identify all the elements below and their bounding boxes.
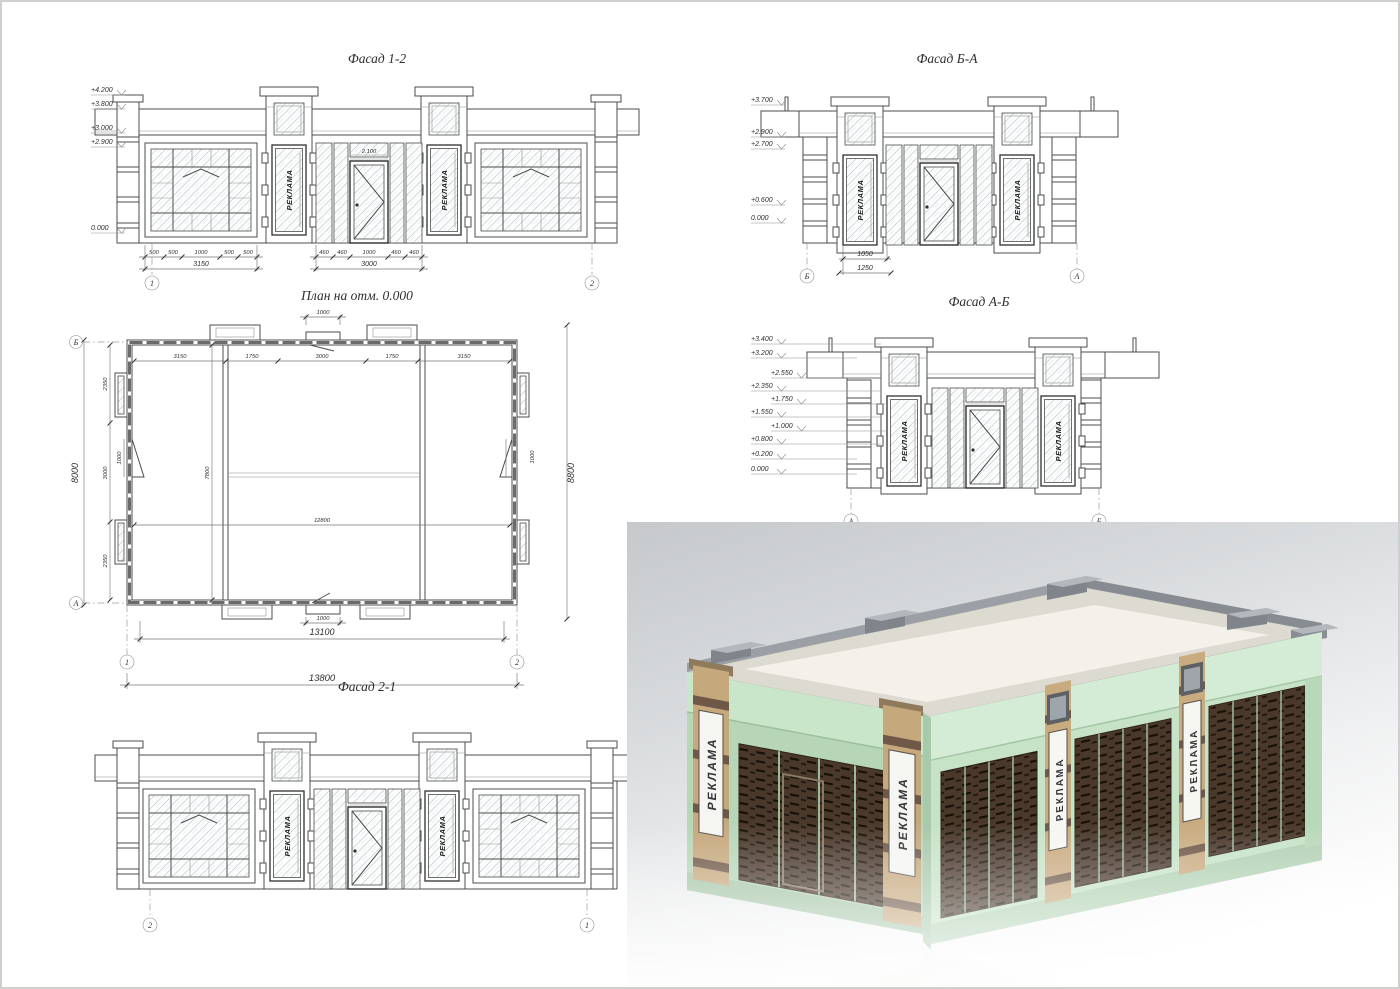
axis-label: А [73, 599, 79, 608]
mark: +3.400 [751, 336, 773, 343]
facade-2-1-title: Фасад 2-1 [338, 679, 396, 694]
dim: 1750 [386, 354, 400, 360]
dim: 1000 [530, 450, 536, 464]
mark: +2.900 [91, 139, 113, 146]
dim: 460 [337, 250, 347, 256]
mark: +0.200 [751, 451, 773, 458]
dim: 500 [243, 250, 253, 256]
dim: 1250 [857, 265, 873, 272]
reflection-fade [627, 822, 1400, 989]
dim: 3150 [458, 354, 472, 360]
mark: +0.600 [751, 197, 773, 204]
dim: 3000 [316, 354, 330, 360]
render-sign-text: РЕКЛАМА [705, 736, 719, 812]
dimension-row-center: 460 460 1000 460 460 3000 [310, 245, 428, 272]
mark: +2.900 [751, 129, 773, 136]
axis-label: Б [73, 338, 79, 347]
dim: 460 [409, 250, 419, 256]
dim: 500 [168, 250, 178, 256]
dim: 7800 [205, 466, 211, 480]
facade-1-2-drawing: Фасад 1-2 2.100 +4.200 +3.800 +3.000 +2.… [87, 47, 647, 292]
mark: +1.550 [751, 409, 773, 416]
dim-total: 3000 [361, 261, 377, 268]
mark: +3.000 [91, 125, 113, 132]
dim-total: 3150 [193, 261, 209, 268]
mark: +1.750 [771, 396, 793, 403]
facade-BA-title: Фасад Б-А [917, 51, 979, 66]
facade-BA-drawing: Фасад Б-А +3.700 +2.900 +2.700 +0.600 0.… [747, 47, 1132, 287]
mark: +3.200 [751, 350, 773, 357]
facade-AB-drawing: Фасад А-Б +3.400 +3.200 +2.550 +2.350 +1… [747, 292, 1172, 532]
dim: 8800 [566, 463, 576, 483]
dim: 1000 [117, 451, 123, 465]
facade-AB-title: Фасад А-Б [949, 294, 1010, 309]
dim: 2350 [103, 377, 109, 392]
axis-label: Б [804, 272, 810, 281]
dim: 1000 [363, 250, 377, 256]
facade-2-1-drawing: Фасад 2-1 2 1 [87, 677, 642, 942]
plan-protrusions [115, 325, 529, 619]
dim: 2350 [103, 554, 109, 569]
dim: 1750 [246, 354, 260, 360]
mark: +3.800 [91, 101, 113, 108]
plan-dimensions: 1000 3150 1750 3000 1750 3150 8000 2350 … [70, 310, 576, 689]
dim: 1000 [317, 310, 331, 316]
axis-label: 2 [148, 921, 152, 930]
mark: 0.000 [91, 225, 109, 232]
axis-label: 1 [585, 921, 589, 930]
dimension-row-left: 500 500 1000 500 500 3150 [139, 245, 263, 272]
axis-bubbles: 2 1 [143, 889, 594, 932]
drawing-sheet: РЕКЛАМА Фа [0, 0, 1400, 989]
mark: +3.700 [751, 97, 773, 104]
render-background: РЕКЛАМА РЕКЛАМА [627, 522, 1400, 989]
axis-label: 2 [515, 658, 519, 667]
mark: +0.800 [751, 436, 773, 443]
plan-title: План на отм. 0.000 [300, 288, 413, 303]
mark: 0.000 [751, 215, 769, 222]
door-height-mark: 2.100 [361, 149, 377, 155]
mark: +1.000 [771, 423, 793, 430]
axis-label: 1 [125, 658, 129, 667]
dim: 500 [224, 250, 234, 256]
axis-bubbles: Б А 1 2 [70, 336, 525, 670]
dim: 13100 [309, 627, 334, 637]
facade-1-2-title: Фасад 1-2 [348, 51, 406, 66]
dim: 3000 [103, 466, 109, 480]
axis-label: А [1074, 272, 1080, 281]
mark: +2.550 [771, 370, 793, 377]
render-sign-text: РЕКЛАМА [1055, 757, 1066, 823]
dim: 8000 [70, 463, 80, 483]
dim: 1050 [857, 251, 873, 258]
dim: 12800 [314, 518, 331, 524]
mark: 0.000 [751, 466, 769, 473]
plan-drawing: План на отм. 0.000 1000 3150 1750 3000 1… [62, 287, 652, 707]
mark: +2.350 [751, 383, 773, 390]
mark: +2.700 [751, 141, 773, 148]
render-sign-text: РЕКЛАМА [1189, 728, 1200, 794]
mark: +4.200 [91, 87, 113, 94]
render-3d: РЕКЛАМА РЕКЛАМА [627, 522, 1400, 989]
dim: 3150 [174, 354, 188, 360]
dim: 460 [319, 250, 329, 256]
dim: 500 [149, 250, 159, 256]
plan-walls [127, 340, 517, 605]
dim: 1000 [317, 616, 331, 622]
dim: 460 [391, 250, 401, 256]
dim: 1000 [195, 250, 209, 256]
